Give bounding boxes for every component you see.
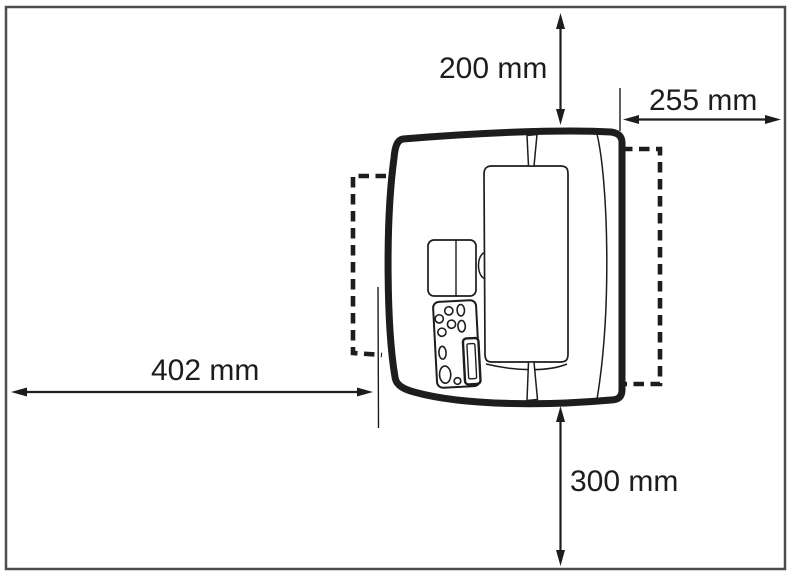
dimension-label-bottom: 300 mm [570,467,678,497]
dimension-label-left: 402 mm [151,356,259,386]
display-module [428,240,476,296]
extension-line-left [378,287,379,428]
dimension-label-top: 200 mm [439,54,547,84]
start-button [463,338,481,385]
dimension-label-right: 255 mm [649,86,757,116]
scanner-lid [484,166,568,362]
control-panel [433,300,481,388]
clearance-diagram: 200 mm 255 mm 402 mm 300 mm [0,0,787,573]
